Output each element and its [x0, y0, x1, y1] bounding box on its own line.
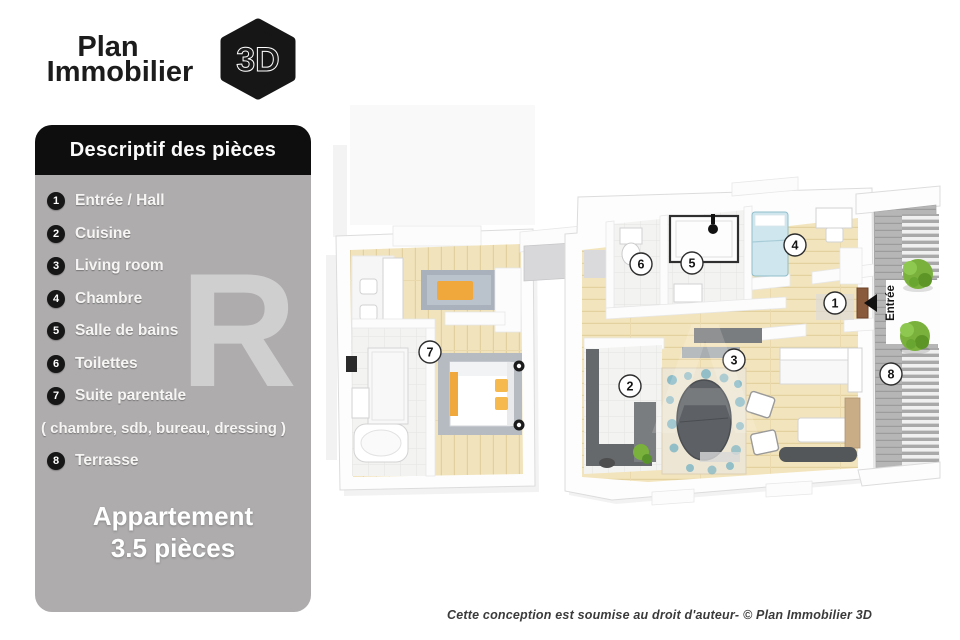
apartment-title-line2: 3.5 pièces [35, 532, 311, 564]
logo-3d-hexagon-icon: 3D [225, 23, 291, 95]
room-marker-6: 6 [630, 253, 652, 275]
wall-fixture [346, 356, 357, 372]
armchair [750, 430, 779, 456]
legend-item-suite: 7 Suite parentale [47, 380, 311, 413]
room-marker-4: 4 [784, 234, 806, 256]
svg-text:2: 2 [627, 380, 634, 394]
washbasin [352, 388, 369, 418]
sideboard [845, 398, 860, 448]
desk [816, 208, 852, 228]
chair [826, 228, 843, 242]
room-marker-3: 3 [723, 349, 745, 371]
apartment-title: Appartement 3.5 pièces [35, 500, 311, 564]
pergola-slats [902, 348, 939, 468]
room-label: Entrée / Hall [75, 192, 165, 210]
room-number-badge: 2 [47, 225, 65, 243]
legend-item-living: 3 Living room [47, 250, 311, 283]
legend-item-entree: 1 Entrée / Hall [47, 185, 311, 218]
legend-room-list: 1 Entrée / Hall 2 Cuisine 3 Living room … [35, 175, 311, 478]
bathtub [354, 424, 408, 462]
wardrobe [840, 248, 862, 284]
legend-item-chambre: 4 Chambre [47, 283, 311, 316]
svg-text:1: 1 [832, 297, 839, 311]
kitchen-counter [586, 349, 599, 447]
svg-text:8: 8 [888, 368, 895, 382]
room-label: Living room [75, 257, 164, 275]
room-label: Salle de bains [75, 322, 178, 340]
suite-bathroom [346, 319, 435, 476]
room-marker-2: 2 [619, 375, 641, 397]
shower-head [708, 224, 718, 234]
room-number-badge: 7 [47, 387, 65, 405]
room-label: Toilettes [75, 355, 138, 373]
legend-panel: Descriptif des pièces 1 Entrée / Hall 2 … [35, 125, 311, 612]
room-marker-7: 7 [419, 341, 441, 363]
legend-item-cuisine: 2 Cuisine [47, 218, 311, 251]
room-label: Suite parentale [75, 387, 186, 405]
room-label: Cuisine [75, 225, 131, 243]
legend-title: Descriptif des pièces [70, 139, 276, 162]
shower [368, 348, 408, 424]
bathroom-room [668, 210, 744, 310]
bush-icon [903, 259, 933, 292]
room-number-badge: 8 [47, 452, 65, 470]
kitchen-room [584, 345, 662, 474]
sink [599, 458, 615, 468]
legend-header: Descriptif des pièces [35, 125, 311, 175]
svg-text:6: 6 [638, 258, 645, 272]
room-number-badge: 1 [47, 192, 65, 210]
room-label: Chambre [75, 290, 142, 308]
legend-item-toilettes: 6 Toilettes [47, 348, 311, 381]
cistern [620, 228, 642, 244]
svg-text:5: 5 [689, 257, 696, 271]
tv-bench [779, 447, 857, 462]
logo-line2: Immobilier [47, 56, 194, 88]
coffee-table [798, 418, 848, 442]
closet-block [393, 226, 481, 246]
dressing-area [421, 270, 497, 310]
apartment-title-line1: Appartement [35, 500, 311, 532]
svg-text:7: 7 [427, 346, 434, 360]
room-marker-5: 5 [681, 252, 703, 274]
room-number-badge: 3 [47, 257, 65, 275]
room-marker-1: 1 [824, 292, 846, 314]
entrance-text: Entrée [885, 285, 897, 321]
room-number-badge: 5 [47, 322, 65, 340]
brand-logo: Plan Immobilier 3D [8, 6, 308, 110]
room-label: Terrasse [75, 452, 138, 470]
svg-text:3: 3 [731, 354, 738, 368]
suite-details-label: ( chambre, sdb, bureau, dressing ) [41, 420, 286, 437]
washbasin [674, 284, 702, 302]
suite-bed [438, 353, 522, 435]
shower [670, 216, 738, 262]
room-number-badge: 6 [47, 355, 65, 373]
room-marker-8: 8 [880, 363, 902, 385]
counter [694, 328, 762, 343]
svg-text:4: 4 [792, 239, 799, 253]
main-wing [565, 177, 878, 505]
svg-text:3D: 3D [236, 41, 279, 79]
copyright-notice: Cette conception est soumise au droit d'… [447, 608, 872, 622]
legend-suite-details: ( chambre, sdb, bureau, dressing ) [41, 413, 311, 446]
legend-item-sdb: 5 Salle de bains [47, 315, 311, 348]
suite-parentale-wing [336, 226, 539, 496]
room-number-badge: 4 [47, 290, 65, 308]
bush-icon [900, 321, 930, 354]
legend-item-terrasse: 8 Terrasse [47, 445, 311, 478]
